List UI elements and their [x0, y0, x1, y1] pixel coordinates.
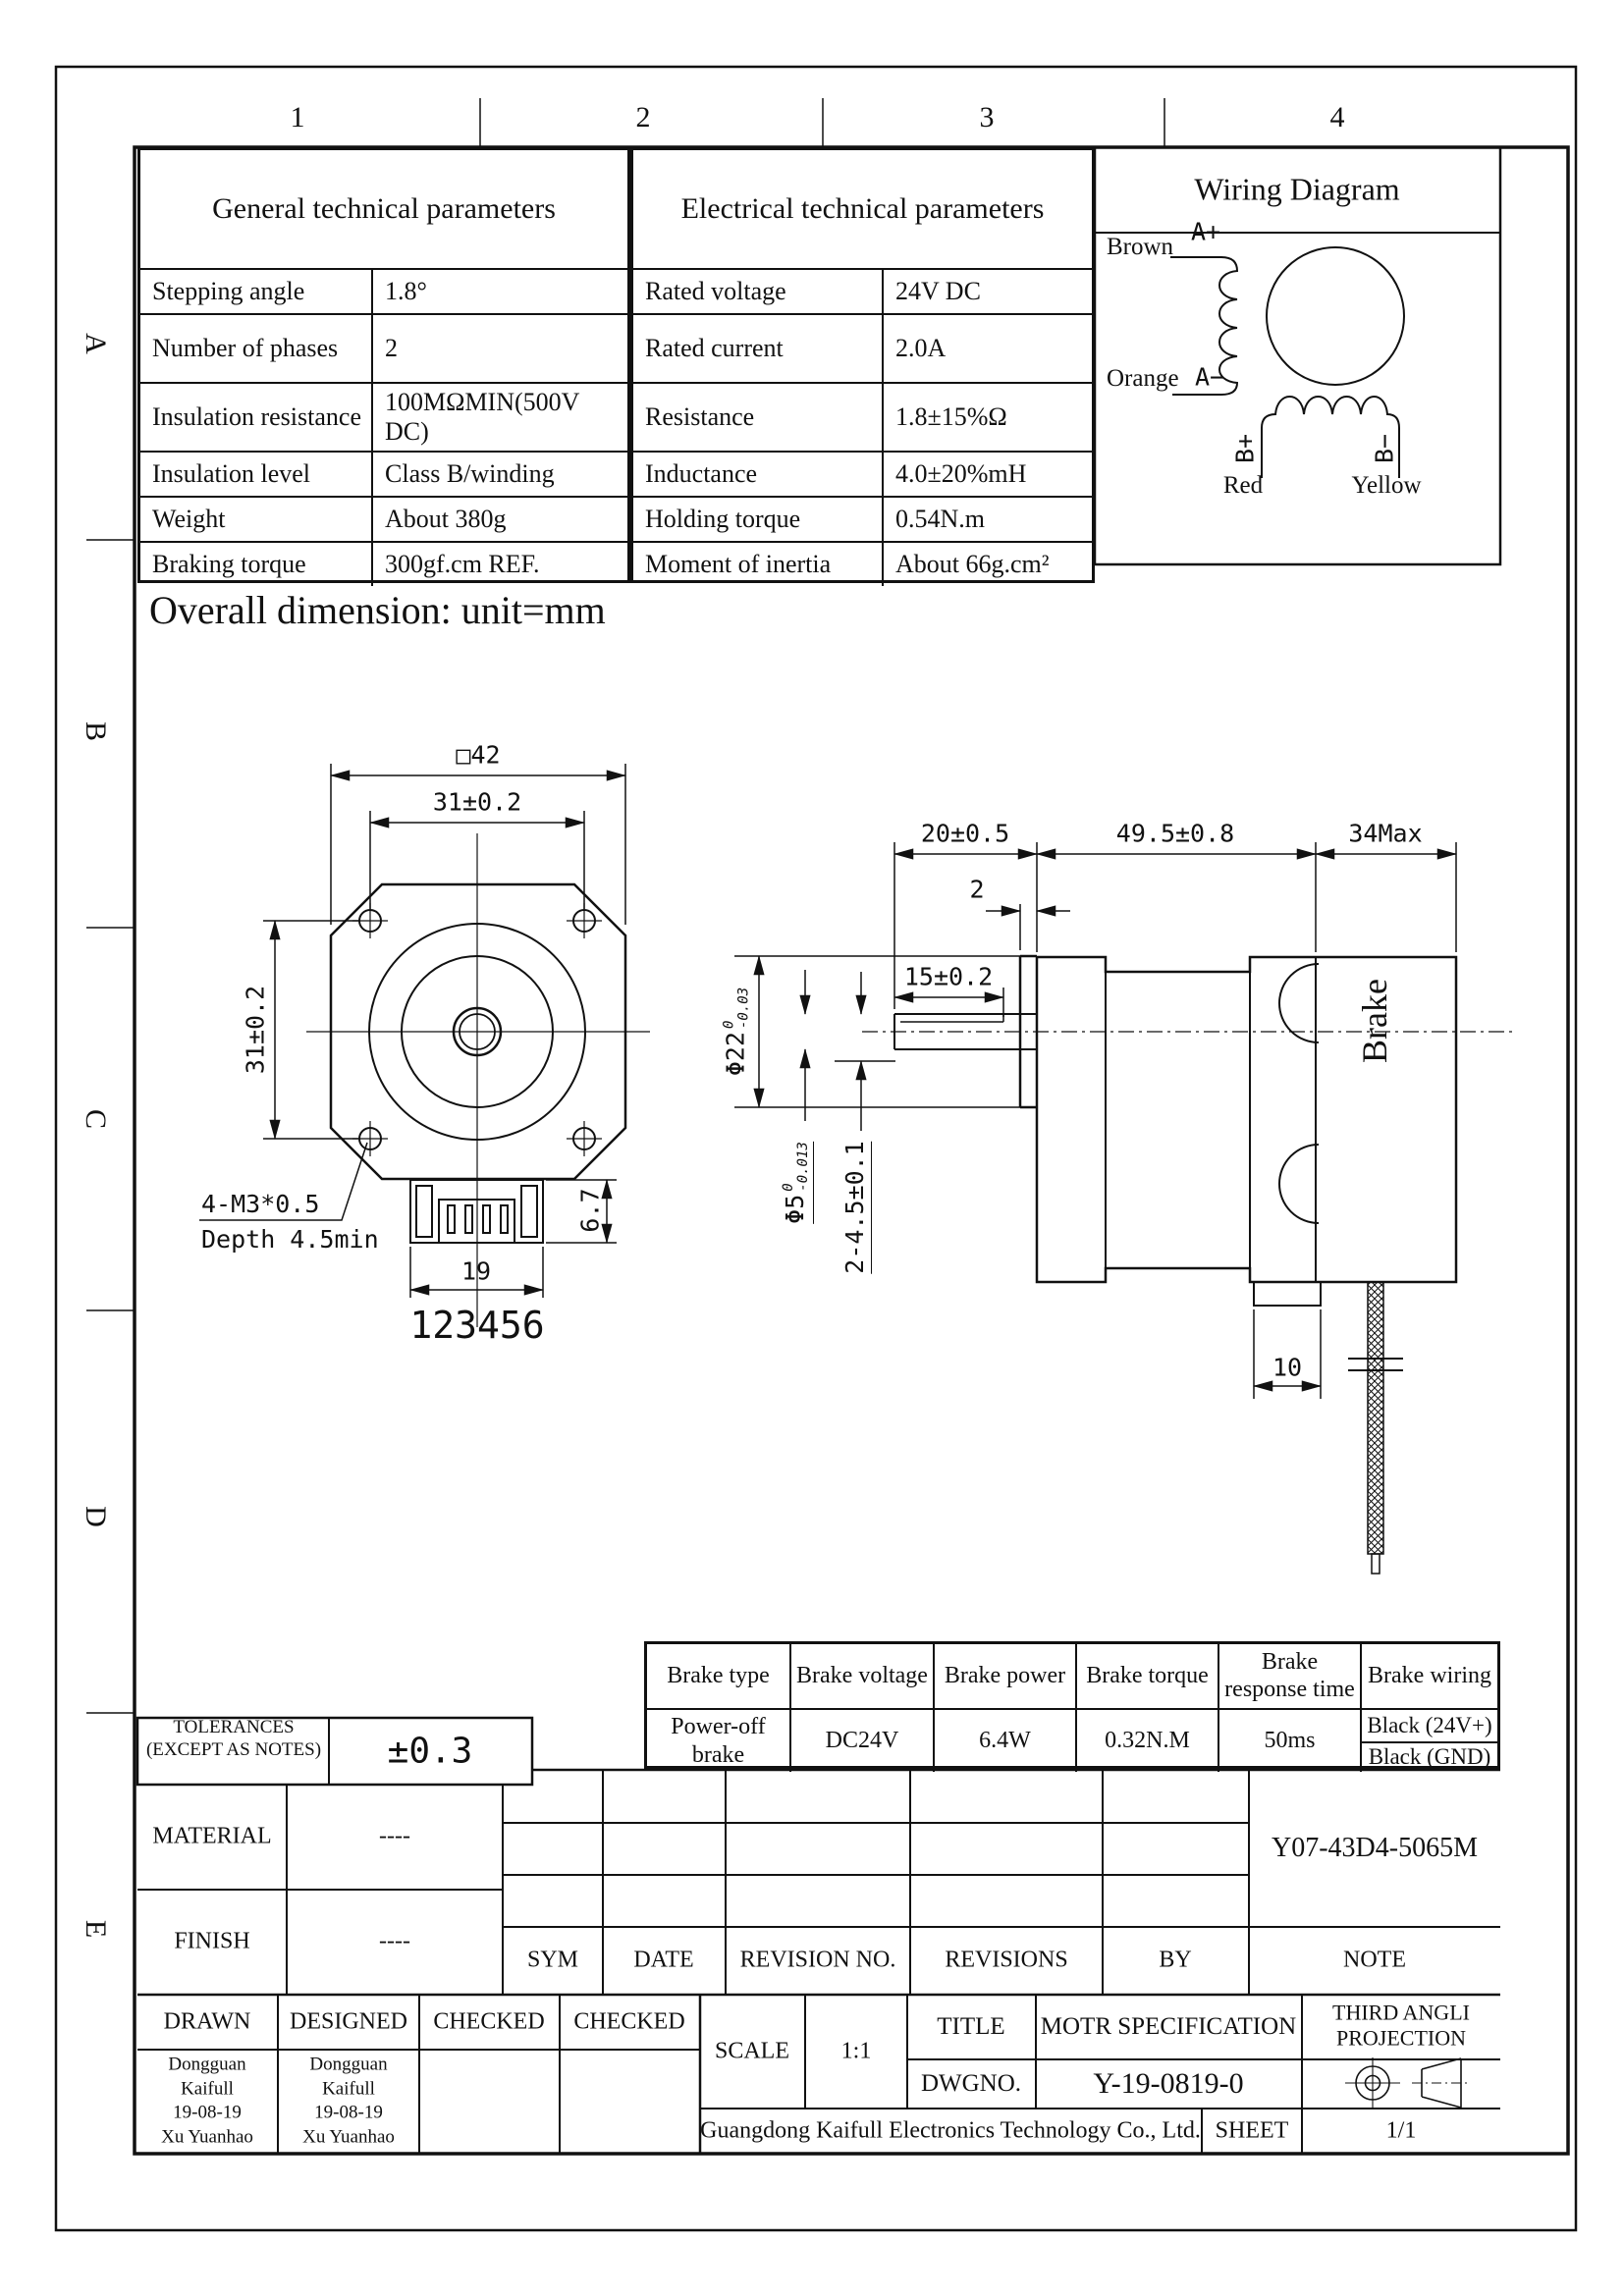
dim-hole-span-v: 31±0.2 [242, 986, 270, 1074]
sheet-label: SHEET [1216, 2118, 1289, 2145]
dim-body-length: 49.5±0.8 [1116, 820, 1234, 848]
dim-boss-diameter: Φ220-0.03 [722, 988, 752, 1076]
zone-row-b: B [79, 721, 112, 741]
drawn-line2: Kaifull [181, 2078, 234, 2099]
row-value: 0.54N.m [882, 496, 1092, 541]
connector-pin-numbers: 123456 [409, 1304, 544, 1347]
brake-wiring-positive: Black (24V+) [1362, 1710, 1497, 1741]
finish-value: ---- [379, 1929, 410, 1955]
row-label: Rated current [633, 313, 882, 382]
company-name: Guangdong Kaifull Electronics Technology… [700, 2118, 1201, 2145]
dim-shaft-diameter: Φ50-0.013 [781, 1142, 814, 1224]
drawn-line1: Dongguan [168, 2055, 245, 2075]
tolerances-label: TOLERANCES (EXCEPT AS NOTES) [140, 1717, 327, 1762]
brake-table: Brake type Brake voltage Brake power Bra… [644, 1641, 1500, 1769]
dwg-no-value: Y-19-0819-0 [1093, 2067, 1243, 2101]
dim-shaft-length: 20±0.5 [921, 820, 1009, 848]
drawn-label: DRAWN [164, 2009, 251, 2036]
dim-shaft-diameter-value: Φ5 [781, 1195, 809, 1224]
row-value: 1.8° [371, 268, 627, 313]
projection-label: THIRD ANGLI PROJECTION [1332, 2001, 1470, 2053]
part-number: Y07-43D4-5065M [1272, 1833, 1478, 1864]
row-label: Rated voltage [633, 268, 882, 313]
title-value: MOTR SPECIFICATION [1041, 2013, 1296, 2041]
row-label: Resistance [633, 382, 882, 451]
row-value: About 66g.cm² [882, 541, 1092, 586]
tolerances-label-line2: (EXCEPT AS NOTES) [146, 1739, 321, 1760]
material-value: ---- [379, 1824, 410, 1850]
rev-header-revisions: REVISIONS [945, 1948, 1067, 1974]
zone-col-2: 2 [636, 101, 651, 134]
designed-label: DESIGNED [290, 2009, 407, 2036]
wire-label-yellow: Yellow [1351, 472, 1421, 500]
brake-type: Power-off brake [647, 1708, 789, 1772]
tol-hi: 0 [782, 1142, 796, 1192]
row-value: 2 [371, 313, 627, 382]
brake-header-text: Brake response time [1219, 1649, 1360, 1703]
wire-label-b-plus: B+ [1231, 434, 1260, 463]
zone-col-4: 4 [1330, 101, 1345, 134]
tolerance-stack: 0-0.03 [723, 988, 752, 1029]
row-value: 300gf.cm REF. [371, 541, 627, 586]
row-label: Insulation resistance [140, 382, 371, 451]
scale-label: SCALE [715, 2039, 789, 2065]
brake-header: Brake response time [1218, 1644, 1360, 1708]
row-label: Number of phases [140, 313, 371, 382]
brake-torque: 0.32N.M [1075, 1708, 1218, 1772]
zone-col-1: 1 [291, 101, 305, 134]
dimension-heading: Overall dimension: unit=mm [149, 587, 606, 633]
zone-col-3: 3 [980, 101, 995, 134]
wiring-diagram-title: Wiring Diagram [1194, 172, 1399, 208]
brake-voltage: DC24V [789, 1708, 933, 1772]
rev-header-by: BY [1159, 1948, 1191, 1974]
tolerance-stack: 0-0.013 [782, 1142, 811, 1192]
rev-header-revision-no: REVISION NO. [740, 1948, 896, 1974]
dim-mount-holes: 2-4.5±0.1 [840, 1141, 872, 1273]
note-screw-spec: 4-M3*0.5 [201, 1190, 319, 1218]
brake-section-label: Brake [1354, 979, 1395, 1063]
drawn-line4: Xu Yuanhao [161, 2127, 253, 2148]
tol-lo: -0.03 [737, 988, 752, 1029]
zone-row-a: A [79, 333, 112, 354]
row-value: 1.8±15%Ω [882, 382, 1092, 451]
electrical-table-title: Electrical technical parameters [633, 150, 1092, 268]
brake-header: Brake power [933, 1644, 1075, 1708]
title-label: TITLE [937, 2013, 1004, 2041]
general-parameters-table: General technical parameters Stepping an… [137, 147, 630, 583]
engineering-drawing-sheet: 1 2 3 4 A B C D E General technical para… [0, 0, 1624, 2296]
sheet-value: 1/1 [1386, 2118, 1417, 2145]
wire-label-orange: Orange [1107, 365, 1179, 393]
row-label: Insulation level [140, 451, 371, 496]
brake-wiring-ground: Black (GND) [1362, 1741, 1497, 1773]
electrical-parameters-table: Electrical technical parameters Rated vo… [630, 147, 1095, 583]
brake-header: Brake torque [1075, 1644, 1218, 1708]
designed-signature: Dongguan Kaifull 19-08-19 Xu Yuanhao [302, 2054, 395, 2151]
wire-label-red: Red [1223, 472, 1263, 500]
row-label: Moment of inertia [633, 541, 882, 586]
zone-row-c: C [79, 1109, 112, 1129]
drawn-line3: 19-08-19 [173, 2103, 242, 2123]
dim-boss-diameter-value: Φ22 [722, 1032, 750, 1076]
finish-label: FINISH [174, 1929, 249, 1955]
material-label: MATERIAL [152, 1824, 271, 1850]
dim-flat-length: 15±0.2 [904, 963, 993, 991]
row-value: 24V DC [882, 268, 1092, 313]
zone-row-e: E [79, 1920, 112, 1938]
row-label: Braking torque [140, 541, 371, 586]
dim-hole-span-h: 31±0.2 [433, 788, 521, 817]
row-label: Inductance [633, 451, 882, 496]
general-table-title: General technical parameters [140, 150, 627, 268]
brake-header: Brake type [647, 1644, 789, 1708]
designed-line4: Xu Yuanhao [302, 2127, 395, 2148]
designed-line3: 19-08-19 [314, 2103, 383, 2123]
row-value: 4.0±20%mH [882, 451, 1092, 496]
brake-power: 6.4W [933, 1708, 1075, 1772]
dim-connector-width: 19 [461, 1257, 491, 1286]
checked-label-2: CHECKED [573, 2009, 684, 2036]
dim-square-42: □42 [456, 741, 500, 770]
row-value: 2.0A [882, 313, 1092, 382]
projection-line1: THIRD ANGLI [1332, 2001, 1470, 2025]
zone-row-d: D [79, 1506, 112, 1527]
dim-connector-height: 6.7 [576, 1188, 605, 1232]
rev-header-note: NOTE [1343, 1948, 1406, 1974]
dwg-no-label: DWGNO. [921, 2070, 1021, 2098]
row-label: Holding torque [633, 496, 882, 541]
row-value: 100MΩMIN(500V DC) [371, 382, 627, 451]
note-screw-depth: Depth 4.5min [201, 1225, 379, 1254]
rev-header-date: DATE [633, 1948, 693, 1974]
brake-wiring: Black (24V+) Black (GND) [1360, 1708, 1497, 1772]
tolerances-value: ±0.3 [388, 1732, 473, 1772]
row-value: Class B/winding [371, 451, 627, 496]
row-label: Weight [140, 496, 371, 541]
rev-header-sym: SYM [527, 1948, 578, 1974]
row-value: About 380g [371, 496, 627, 541]
drawn-signature: Dongguan Kaifull 19-08-19 Xu Yuanhao [161, 2054, 253, 2151]
dim-wire-exit: 10 [1272, 1354, 1302, 1382]
brake-header: Brake voltage [789, 1644, 933, 1708]
third-angle-projection-icon [1345, 2057, 1471, 2109]
wire-label-a-plus: A+ [1191, 218, 1220, 246]
wiring-diagram-linework [1095, 147, 1500, 564]
wire-label-b-minus: B− [1371, 434, 1399, 463]
checked-label: CHECKED [433, 2009, 544, 2036]
brake-header: Brake wiring [1360, 1644, 1497, 1708]
wire-label-brown: Brown [1107, 234, 1173, 261]
projection-line2: PROJECTION [1336, 2026, 1466, 2051]
tolerances-label-line1: TOLERANCES [173, 1717, 294, 1737]
scale-value: 1:1 [841, 2039, 872, 2065]
tol-hi: 0 [723, 988, 737, 1029]
wire-label-a-minus: A− [1195, 363, 1224, 392]
brake-response-time: 50ms [1218, 1708, 1360, 1772]
dim-brake-length: 34Max [1348, 820, 1422, 848]
row-label: Stepping angle [140, 268, 371, 313]
designed-line1: Dongguan [309, 2055, 387, 2075]
tol-lo: -0.013 [796, 1142, 811, 1192]
dim-boss-length: 2 [969, 876, 984, 904]
designed-line2: Kaifull [322, 2078, 375, 2099]
